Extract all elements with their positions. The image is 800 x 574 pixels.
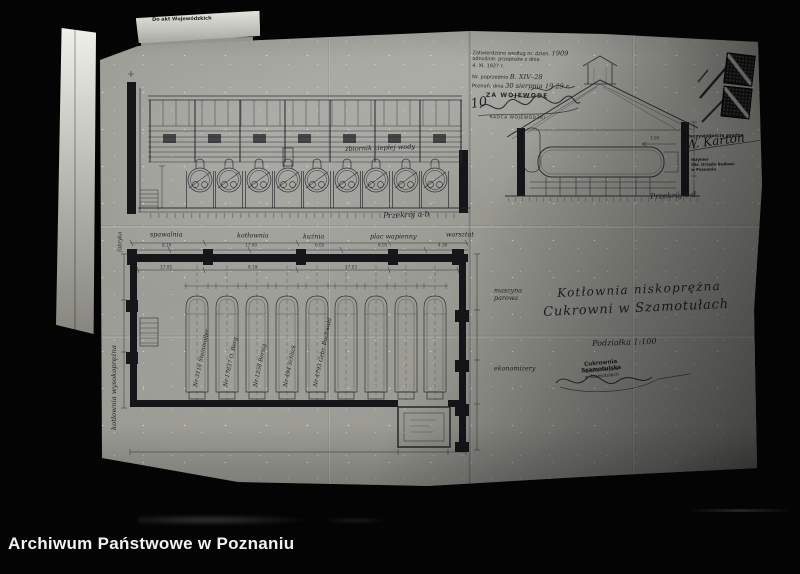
vertical-fold-line (328, 0, 331, 574)
horizontal-fold-line (0, 225, 800, 229)
film-smudge (320, 517, 390, 524)
film-edge-mark (688, 509, 792, 512)
film-smudge (138, 514, 313, 526)
archive-caption: Archiwum Państwowe w Poznaniu (8, 534, 294, 554)
vertical-fold-line (468, 0, 472, 574)
horizontal-fold-line (0, 335, 800, 338)
blueprint-sheet (0, 0, 800, 574)
archive-photo-frame: Do akt Wojewódzkich Zatwierdzono według … (0, 0, 800, 574)
revenue-stamp-2 (720, 86, 752, 120)
side-sheet-crease (74, 30, 76, 330)
folded-side-sheet (56, 28, 96, 334)
revenue-stamp-1 (723, 52, 756, 86)
vertical-fold-line (632, 0, 636, 574)
